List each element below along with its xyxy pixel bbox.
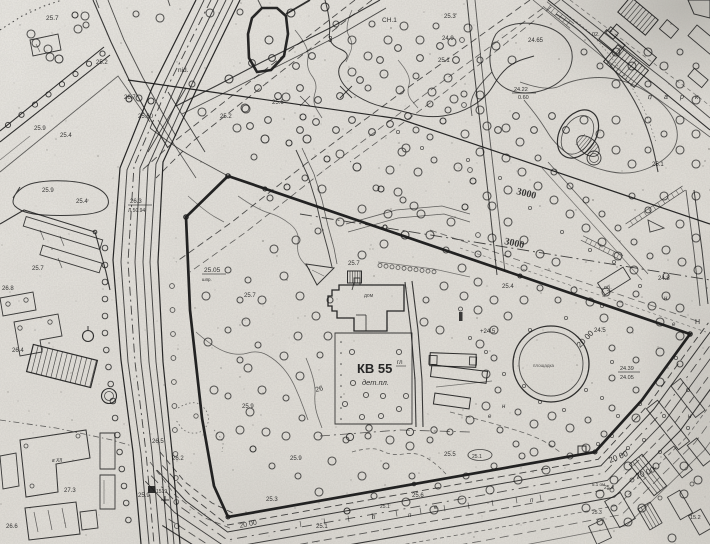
svg-text:Н: Н (695, 319, 700, 326)
svg-text:в XII: в XII (52, 458, 63, 464)
svg-text:24.5: 24.5 (594, 328, 606, 334)
svg-text:25.4: 25.4 (60, 133, 72, 139)
svg-text:25.1: 25.1 (438, 58, 450, 64)
svg-text:0.60: 0.60 (518, 95, 529, 101)
svg-text:24.65: 24.65 (528, 38, 544, 44)
svg-text:дом: дом (364, 293, 374, 299)
svg-text:26.2: 26.2 (172, 456, 184, 462)
svg-text:25.60: 25.60 (138, 114, 154, 120)
svg-text:Л 50.94: Л 50.94 (128, 208, 145, 214)
svg-text:02.: 02. (592, 32, 600, 38)
svg-text:25.7: 25.7 (46, 15, 59, 22)
svg-text:25.05: 25.05 (204, 267, 221, 274)
svg-text:25.7: 25.7 (244, 293, 256, 299)
svg-text:27.3: 27.3 (64, 488, 76, 494)
svg-text:25.1: 25.1 (380, 504, 390, 510)
svg-text:26.6: 26.6 (6, 524, 18, 530)
svg-text:25.9: 25.9 (138, 493, 150, 499)
svg-text:р: р (679, 94, 684, 101)
svg-text:25.9: 25.9 (34, 126, 46, 132)
svg-text:24.22: 24.22 (514, 87, 528, 93)
svg-text:25.3: 25.3 (592, 510, 602, 516)
svg-text:гл: гл (397, 360, 403, 366)
svg-text:шпр.: шпр. (202, 277, 212, 282)
svg-text:25.2: 25.2 (96, 60, 108, 66)
svg-text:25.9: 25.9 (42, 188, 54, 194)
svg-text:25.6: 25.6 (412, 493, 424, 499)
svg-text:25.1: 25.1 (472, 454, 482, 460)
svg-text:25.1: 25.1 (316, 524, 328, 530)
svg-text:26.3: 26.3 (130, 199, 142, 205)
svg-text:25.3: 25.3 (266, 497, 278, 503)
svg-text:25.2: 25.2 (220, 114, 232, 120)
svg-text:25.7: 25.7 (348, 261, 360, 267)
svg-text:25.9: 25.9 (290, 456, 302, 462)
svg-text:25.3: 25.3 (444, 14, 456, 20)
svg-text:5.1 ом: 5.1 ом (592, 482, 605, 487)
svg-text:СН.1: СН.1 (382, 17, 397, 24)
svg-text:25.6: 25.6 (272, 100, 284, 106)
svg-text:КВ 55: КВ 55 (357, 361, 392, 376)
svg-text:24.05: 24.05 (620, 375, 634, 381)
svg-text:3: 3 (328, 35, 333, 44)
svg-text:дет.пл.: дет.пл. (362, 378, 389, 387)
svg-text:площадка: площадка (533, 363, 555, 368)
svg-text:nid.: nid. (178, 67, 189, 74)
svg-text:25.4: 25.4 (502, 284, 514, 290)
svg-text:24.39: 24.39 (620, 366, 634, 372)
svg-text:н: н (688, 414, 691, 420)
svg-text:25.4: 25.4 (76, 199, 88, 205)
svg-text:25.7: 25.7 (32, 266, 44, 272)
svg-text:25.1: 25.1 (652, 162, 664, 168)
svg-text:15.2: 15.2 (690, 515, 701, 521)
svg-text:26.4: 26.4 (12, 348, 24, 354)
svg-text:25.5: 25.5 (444, 452, 456, 458)
svg-text:1519: 1519 (156, 489, 167, 495)
svg-text:п: п (648, 94, 652, 101)
svg-text:а: а (664, 94, 668, 101)
svg-text:26.8: 26.8 (2, 286, 14, 292)
